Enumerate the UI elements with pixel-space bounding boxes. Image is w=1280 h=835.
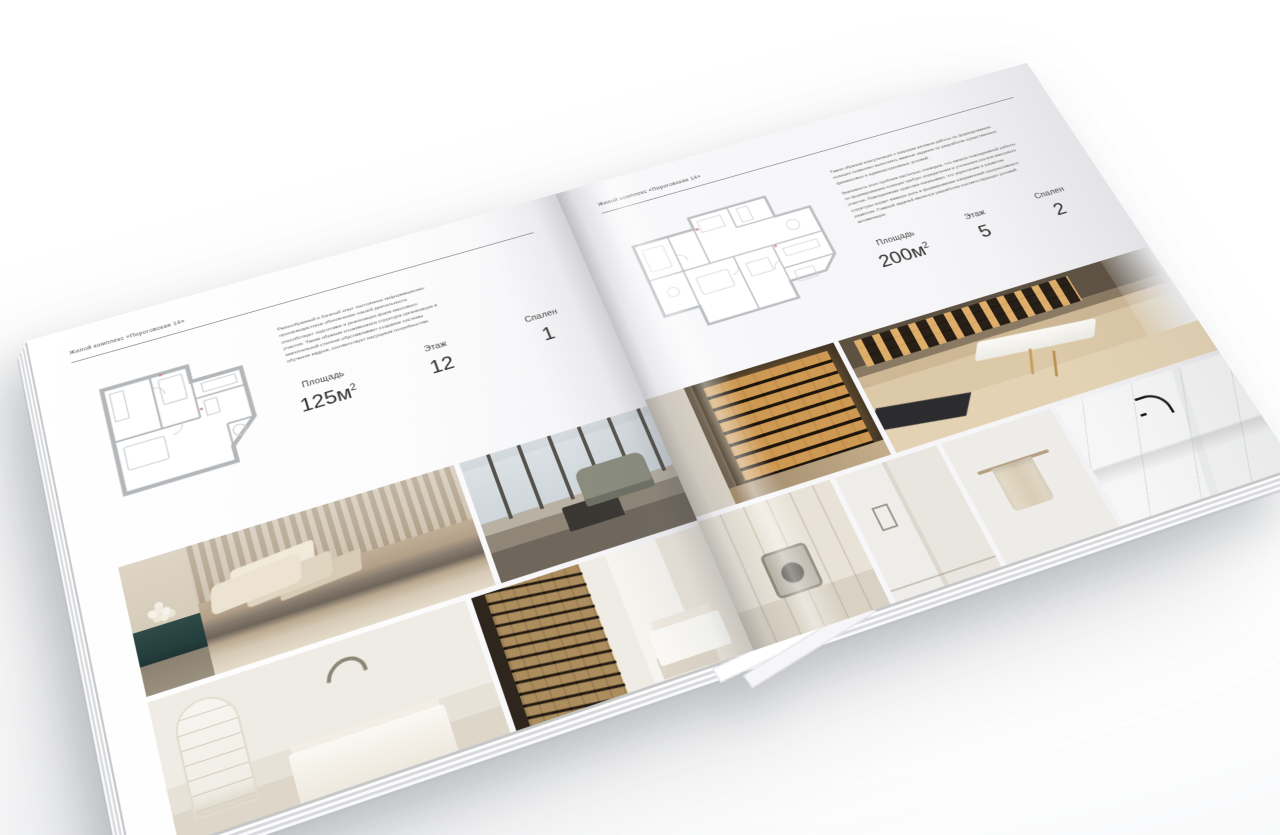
flowers-shape [147,609,158,619]
left-spec-area: Площадь 125м2 [294,366,361,416]
dark-counter-shape [870,391,971,431]
left-spec-bedrooms: Спален 1 [517,304,576,350]
right-spec-area: Площадь 200м2 [868,226,935,271]
wreath-decor-shape [318,649,376,703]
right-spec-bedrooms: Спален 2 [1026,182,1086,223]
brochure-spread: Жилой комплекс «Пироговская 14» [27,62,1280,835]
desk-gold-legs-shape [1028,348,1033,373]
window-light-shape [1101,246,1198,335]
bed-pillows-shape [210,551,302,615]
left-floor-plan [75,327,292,518]
left-spec-floor: Этаж 12 [411,335,470,382]
magazine-shadow-wrap: Жилой комплекс «Пироговская 14» [0,0,1280,835]
right-spec-floor: Этаж 5 [952,204,1012,246]
floor-plan-left-svg [75,327,292,518]
scene-background: Жилой комплекс «Пироговская 14» [0,0,1280,835]
